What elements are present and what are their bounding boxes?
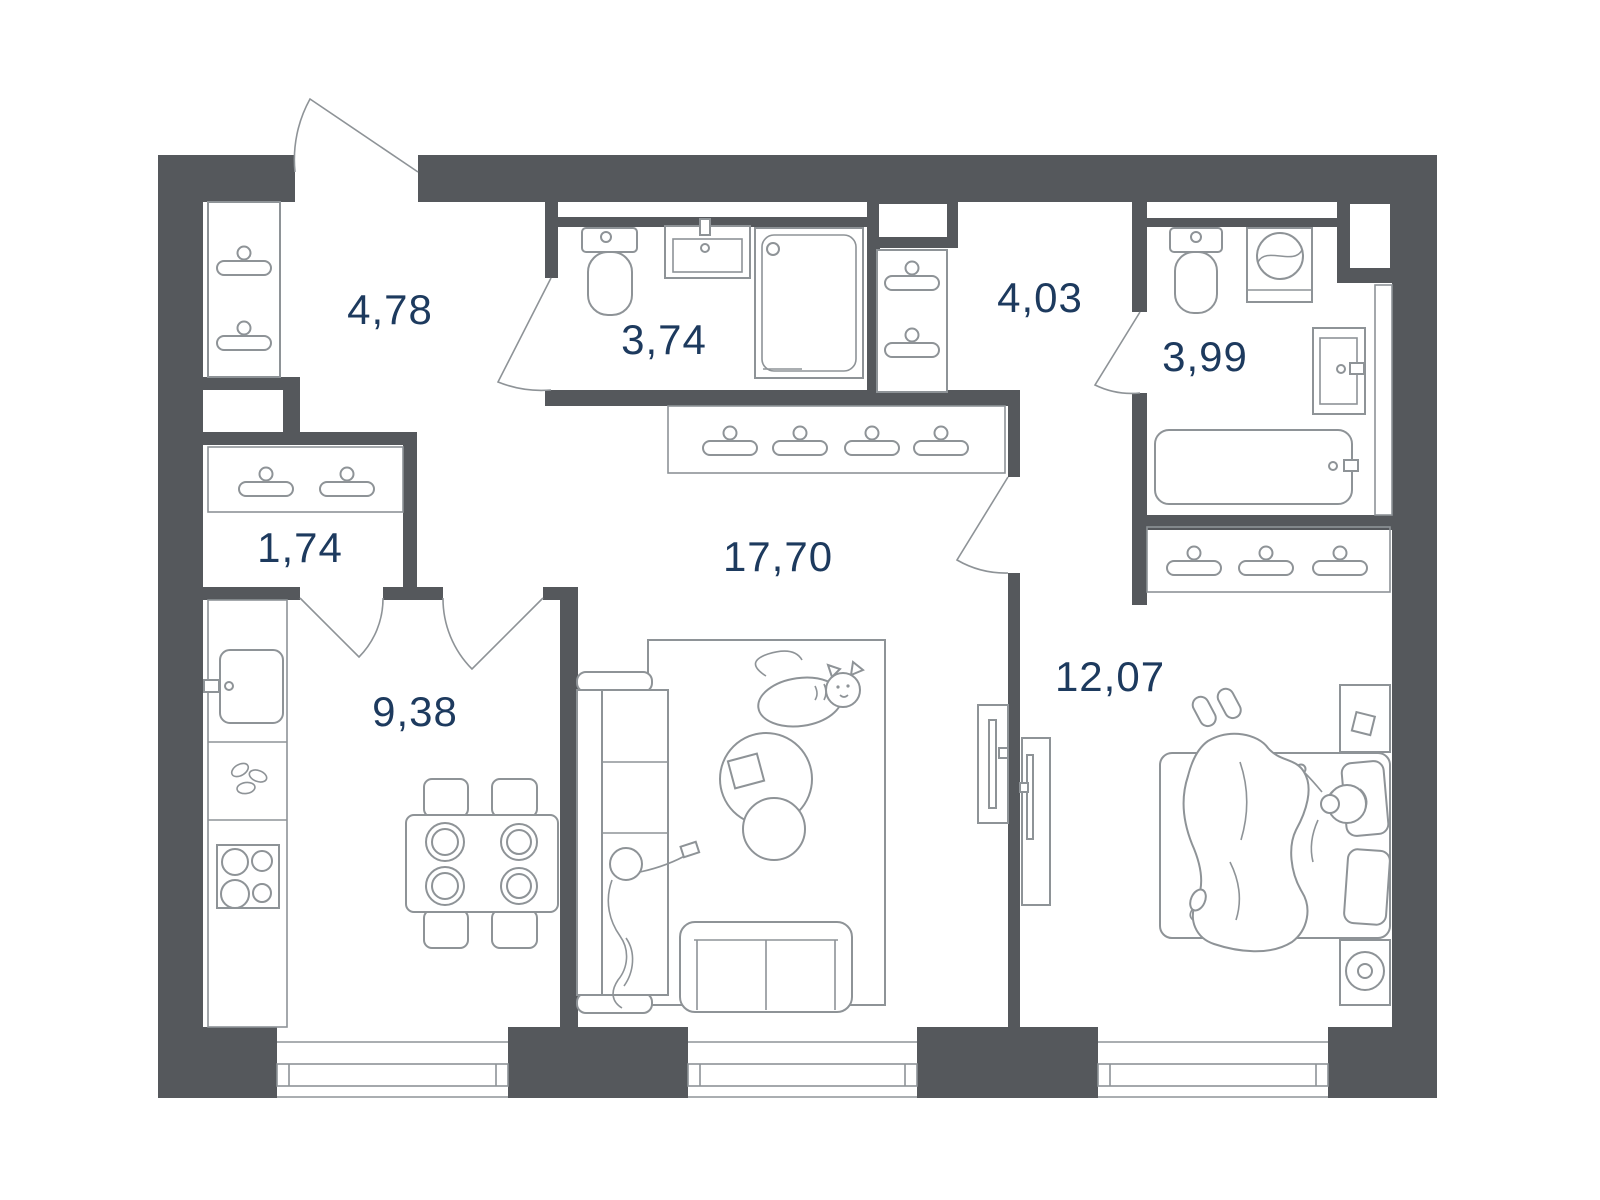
entrance-door-icon: [294, 99, 418, 172]
bathtub-icon: [1155, 430, 1358, 504]
wall-niche: [203, 390, 283, 432]
tv-icon: [1027, 755, 1033, 839]
hanger-icon: [845, 427, 899, 456]
vent-shaft: [1375, 285, 1392, 515]
herbs-decor-icon: [229, 761, 268, 795]
tv-console-icon: [978, 705, 1008, 823]
area-label-entry-hall: 4,78: [347, 286, 433, 334]
floor-plan-drawing: [0, 0, 1600, 1200]
hanger-icon: [703, 427, 757, 456]
window-icon: [277, 1042, 508, 1097]
washbasin-icon: [1313, 328, 1365, 414]
chair-icon: [424, 779, 468, 817]
hanger-icon: [914, 427, 968, 456]
tv-icon: [989, 720, 996, 808]
area-label-bathroom-main: 3,99: [1162, 333, 1248, 381]
area-label-kitchen: 9,38: [372, 688, 458, 736]
washbasin-icon: [665, 219, 750, 278]
toilet-icon: [1170, 228, 1222, 313]
entry-wardrobe: [208, 202, 280, 377]
living-room-furniture: [577, 640, 1008, 1013]
bedroom-hanger-rail: [1147, 527, 1390, 592]
hallway-wardrobe: [877, 250, 947, 392]
shower-cabin-icon: [755, 228, 863, 378]
tv-console-icon: [1020, 738, 1050, 905]
nightstand-icon: [1340, 940, 1390, 1005]
washing-machine-icon: [1247, 228, 1312, 302]
area-label-bedroom: 12,07: [1055, 653, 1165, 701]
window-icon: [688, 1042, 917, 1097]
kitchen-fixtures: [204, 600, 558, 1027]
wall-niche: [879, 204, 947, 237]
windows: [277, 1042, 1328, 1097]
dining-table-icon: [406, 779, 558, 948]
sofa-icon: [577, 672, 668, 1013]
area-label-living-room: 17,70: [723, 533, 833, 581]
door-icon: [498, 278, 551, 390]
door-icon: [957, 477, 1008, 573]
window-icon: [1098, 1042, 1328, 1097]
chair-icon: [492, 779, 537, 817]
phone-icon: [681, 842, 700, 857]
blanket-icon: [1184, 734, 1309, 951]
hanger-icon: [773, 427, 827, 456]
hanger-icon: [1239, 547, 1293, 576]
closet-hanger-rail: [208, 447, 403, 512]
hanger-icon: [320, 468, 374, 497]
cat-icon: [755, 651, 863, 732]
wall-niche: [1350, 204, 1390, 268]
living-hanger-rail: [668, 406, 1005, 473]
chair-icon: [424, 910, 468, 948]
hanger-icon: [1313, 547, 1367, 576]
area-label-hallway: 4,03: [997, 274, 1083, 322]
coffee-table-icon: [720, 733, 812, 860]
pillow-icon: [1343, 849, 1390, 926]
slippers-icon: [1190, 686, 1244, 729]
kitchen-sink-icon: [204, 650, 283, 723]
floor-plan: 4,78 3,74 4,03 3,99 1,74 17,70 9,38 12,0…: [0, 0, 1600, 1200]
nightstand-icon: [1340, 685, 1390, 752]
door-icon: [300, 598, 383, 657]
bedroom-furniture: [1020, 685, 1391, 1005]
area-label-bathroom-guest: 3,74: [621, 316, 707, 364]
hanger-icon: [239, 468, 293, 497]
stove-icon: [217, 845, 279, 908]
door-icon: [443, 598, 543, 669]
couch-icon: [680, 922, 852, 1012]
chair-icon: [492, 910, 537, 948]
toilet-icon: [582, 228, 637, 315]
area-label-closet: 1,74: [257, 524, 343, 572]
hanger-icon: [1167, 547, 1221, 576]
bed-icon: [1160, 734, 1391, 951]
door-icon: [1095, 312, 1140, 393]
